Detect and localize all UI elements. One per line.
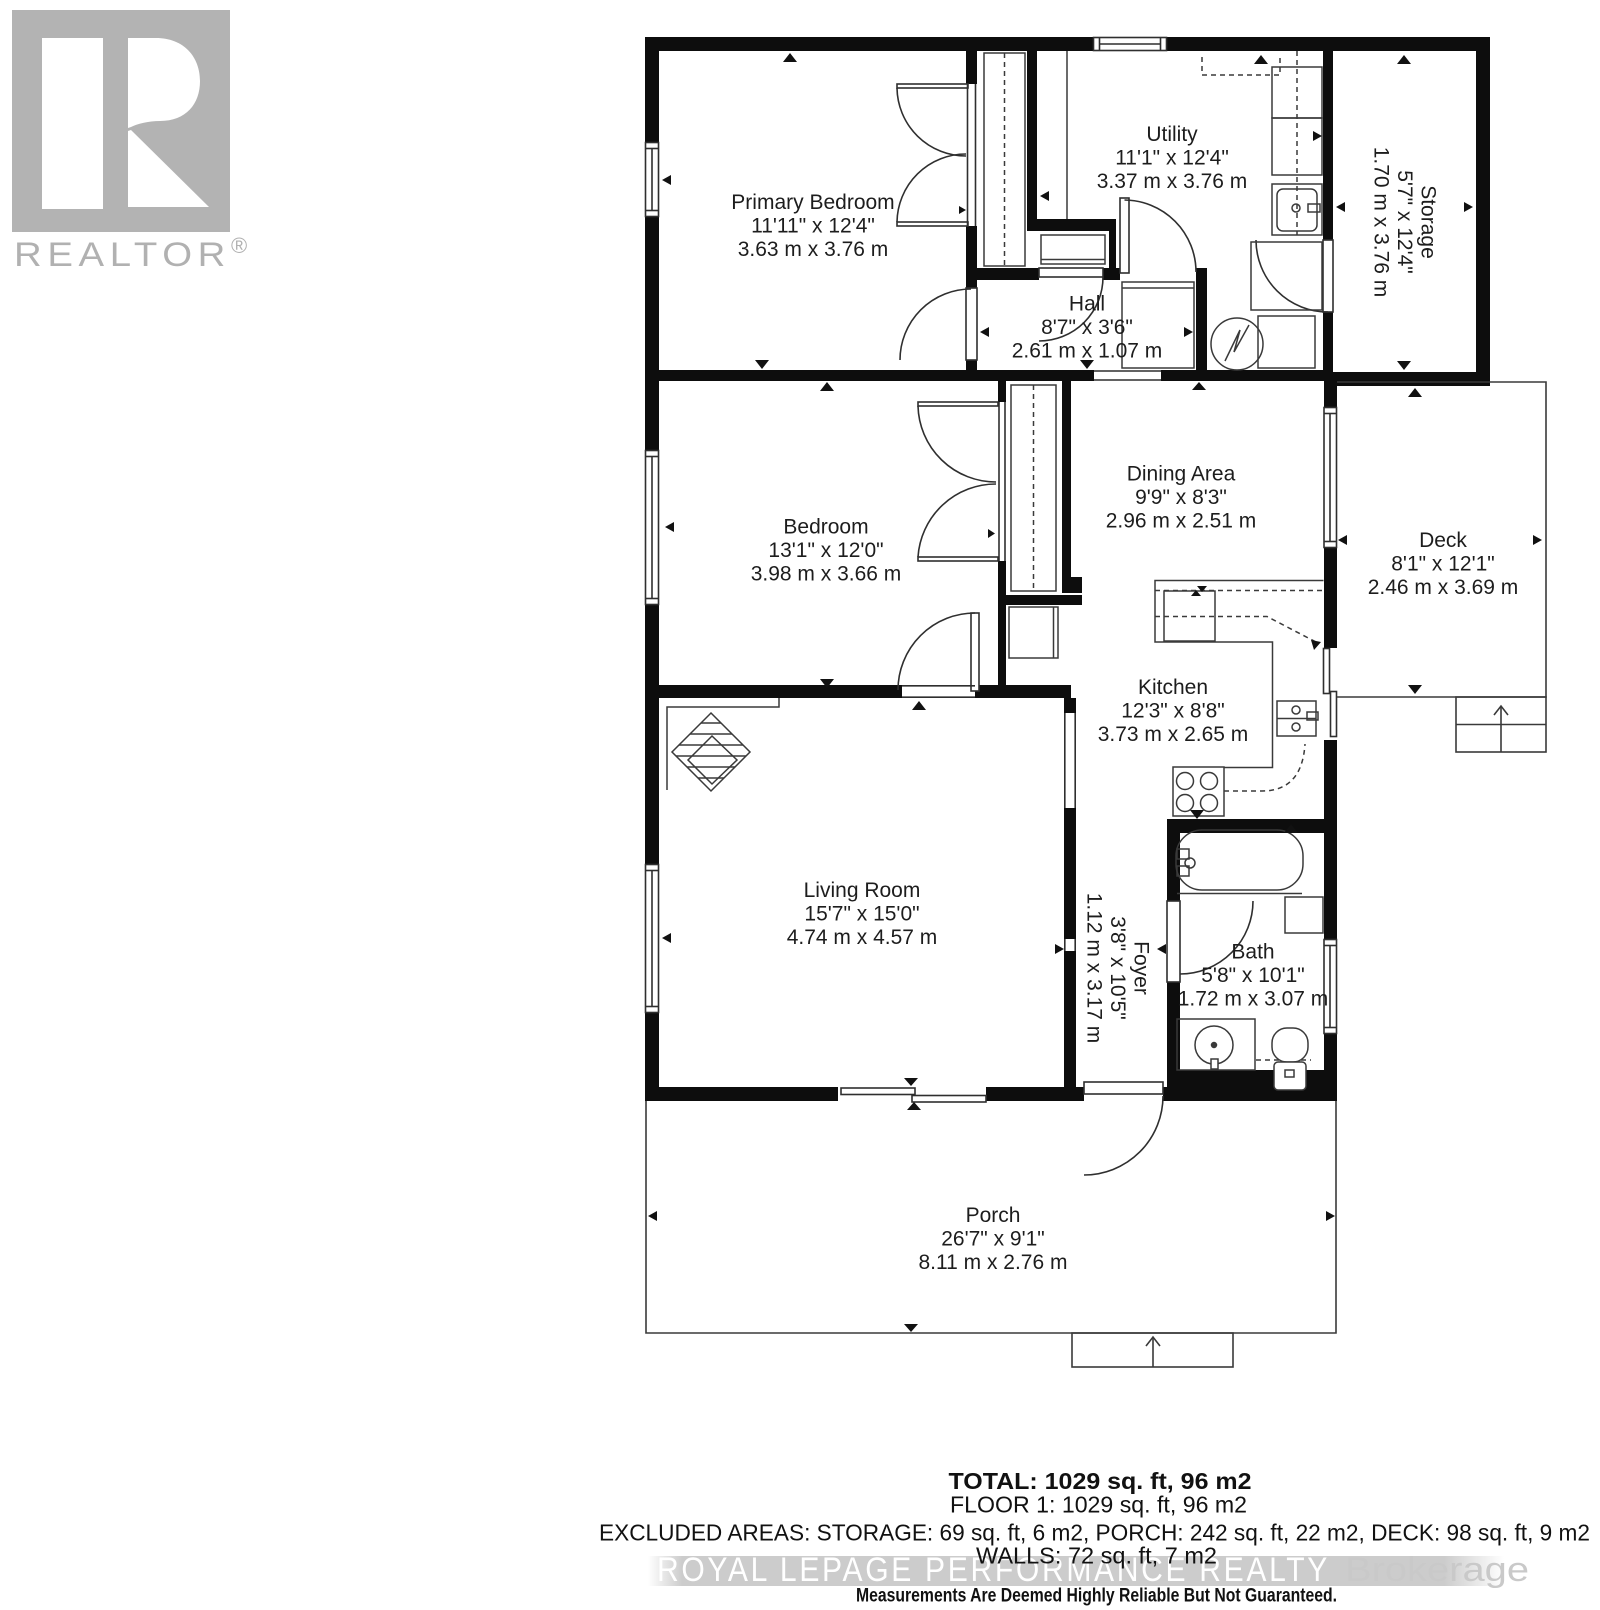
svg-text:Bath: Bath	[1231, 941, 1274, 964]
svg-text:Dining Area: Dining Area	[1127, 463, 1236, 486]
svg-text:12'3" x 8'8": 12'3" x 8'8"	[1121, 700, 1225, 723]
svg-text:WALLS: 72 sq. ft, 7 m2: WALLS: 72 sq. ft, 7 m2	[976, 1543, 1217, 1569]
svg-text:8'7" x 3'6": 8'7" x 3'6"	[1041, 316, 1133, 339]
svg-text:Porch: Porch	[966, 1204, 1021, 1227]
svg-text:Living Room: Living Room	[804, 879, 921, 902]
svg-text:11'1" x 12'4": 11'1" x 12'4"	[1115, 147, 1229, 170]
svg-text:3.73 m x 2.65 m: 3.73 m x 2.65 m	[1098, 723, 1249, 746]
svg-text:3.37 m x 3.76 m: 3.37 m x 3.76 m	[1097, 170, 1248, 193]
svg-text:FLOOR 1: 1029 sq. ft, 96 m2: FLOOR 1: 1029 sq. ft, 96 m2	[950, 1492, 1247, 1518]
svg-text:3.98 m x 3.66 m: 3.98 m x 3.66 m	[751, 563, 902, 586]
svg-text:3.63 m x 3.76 m: 3.63 m x 3.76 m	[738, 238, 889, 261]
svg-text:3'8" x 10'5": 3'8" x 10'5"	[1106, 916, 1129, 1020]
svg-text:®: ®	[231, 233, 247, 258]
svg-text:5'8" x 10'1": 5'8" x 10'1"	[1201, 964, 1305, 987]
svg-text:1.72 m x 3.07 m: 1.72 m x 3.07 m	[1178, 988, 1329, 1011]
svg-text:11'11" x 12'4": 11'11" x 12'4"	[751, 215, 875, 238]
svg-text:Deck: Deck	[1419, 529, 1467, 552]
svg-text:15'7" x 15'0": 15'7" x 15'0"	[804, 903, 919, 926]
svg-text:Brokerage: Brokerage	[1345, 1551, 1529, 1589]
svg-text:26'7" x 9'1": 26'7" x 9'1"	[941, 1228, 1045, 1251]
svg-text:1.70 m x 3.76 m: 1.70 m x 3.76 m	[1370, 147, 1393, 298]
svg-text:8'1" x 12'1": 8'1" x 12'1"	[1391, 553, 1495, 576]
svg-text:Kitchen: Kitchen	[1138, 676, 1208, 699]
svg-text:TOTAL: 1029 sq. ft, 96 m2: TOTAL: 1029 sq. ft, 96 m2	[949, 1468, 1252, 1494]
svg-text:1.12 m x 3.17 m: 1.12 m x 3.17 m	[1083, 893, 1106, 1044]
svg-text:2.96 m x 2.51 m: 2.96 m x 2.51 m	[1106, 510, 1257, 533]
svg-text:9'9" x 8'3": 9'9" x 8'3"	[1135, 486, 1227, 509]
svg-text:Primary Bedroom: Primary Bedroom	[731, 191, 894, 214]
svg-text:Utility: Utility	[1146, 123, 1198, 146]
svg-text:5'7" x 12'4": 5'7" x 12'4"	[1393, 170, 1416, 274]
svg-text:2.61 m x 1.07 m: 2.61 m x 1.07 m	[1012, 340, 1163, 363]
svg-text:Hall: Hall	[1069, 293, 1105, 316]
svg-text:4.74 m x 4.57 m: 4.74 m x 4.57 m	[787, 926, 938, 949]
svg-text:8.11 m x 2.76 m: 8.11 m x 2.76 m	[918, 1251, 1067, 1274]
svg-text:Measurements Are Deemed Highly: Measurements Are Deemed Highly Reliable …	[856, 1586, 1337, 1607]
svg-text:2.46 m x 3.69 m: 2.46 m x 3.69 m	[1368, 576, 1519, 599]
svg-text:REALTOR: REALTOR	[14, 236, 231, 274]
svg-text:13'1" x 12'0": 13'1" x 12'0"	[768, 539, 883, 562]
svg-text:Foyer: Foyer	[1130, 941, 1153, 995]
svg-text:Storage: Storage	[1417, 185, 1440, 259]
svg-text:Bedroom: Bedroom	[783, 516, 868, 539]
